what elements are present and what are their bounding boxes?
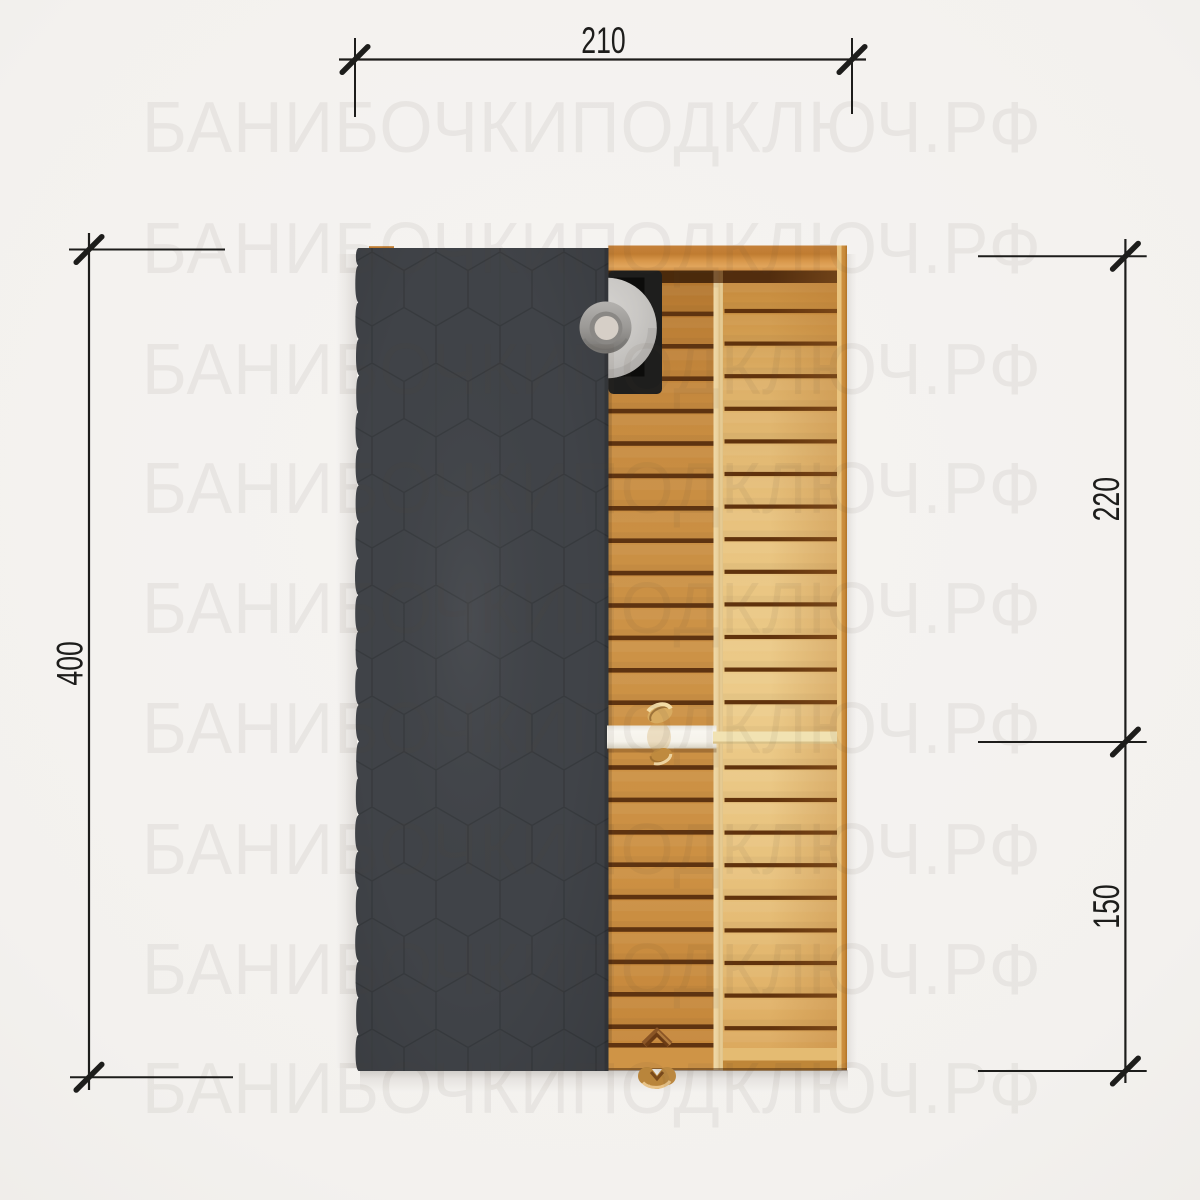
svg-text:210: 210	[581, 20, 625, 61]
svg-text:150: 150	[1086, 884, 1127, 928]
svg-text:220: 220	[1086, 477, 1127, 521]
svg-text:400: 400	[49, 641, 90, 685]
